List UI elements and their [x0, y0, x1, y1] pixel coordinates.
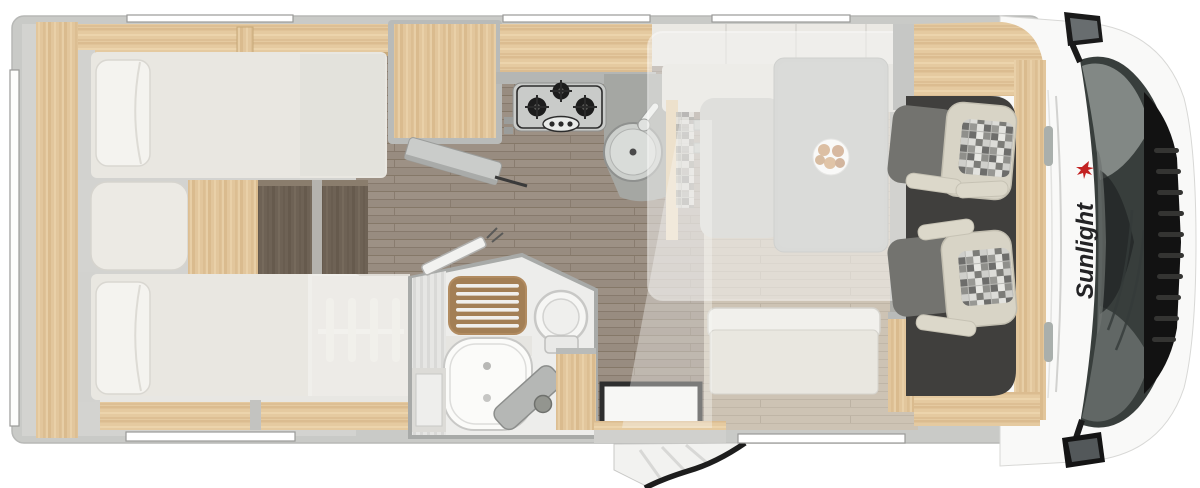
svg-text:Sunlight: Sunlight [1072, 202, 1099, 299]
